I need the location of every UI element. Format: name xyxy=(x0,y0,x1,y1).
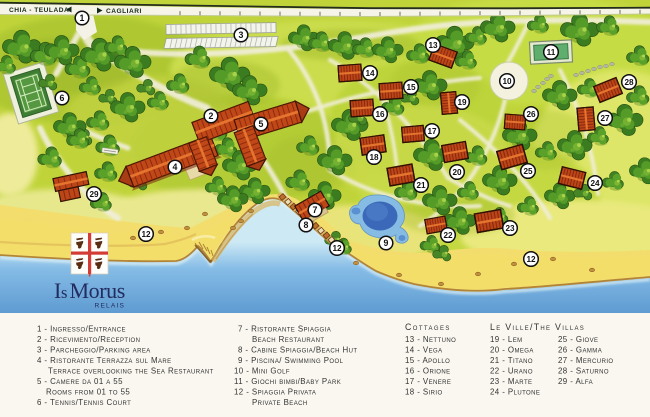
svg-text:3 - Parcheggio/Parking area: 3 - Parcheggio/Parking area xyxy=(37,346,151,355)
svg-text:20: 20 xyxy=(452,168,462,177)
svg-text:11: 11 xyxy=(547,48,556,57)
svg-text:4 - Ristorante Terrazza sul Ma: 4 - Ristorante Terrazza sul Mare xyxy=(37,356,172,365)
svg-text:9 - Piscina/ Swimming Pool: 9 - Piscina/ Swimming Pool xyxy=(238,356,344,365)
svg-text:23 - Marte: 23 - Marte xyxy=(490,377,532,386)
svg-text:15 - Apollo: 15 - Apollo xyxy=(405,356,450,365)
svg-text:9: 9 xyxy=(384,238,389,248)
svg-text:17 - Venere: 17 - Venere xyxy=(405,377,451,386)
svg-text:2: 2 xyxy=(209,111,214,121)
svg-text:Cottages: Cottages xyxy=(405,322,451,332)
svg-text:CHIA - TEULADA: CHIA - TEULADA xyxy=(9,7,69,14)
svg-text:25: 25 xyxy=(523,167,533,176)
svg-text:18 - Sirio: 18 - Sirio xyxy=(405,388,443,397)
svg-text:15: 15 xyxy=(406,83,416,92)
svg-text:28: 28 xyxy=(624,78,634,87)
svg-text:7: 7 xyxy=(313,205,318,215)
svg-text:Private Beach: Private Beach xyxy=(252,398,308,407)
svg-text:25 - Giove: 25 - Giove xyxy=(558,335,598,344)
svg-text:Le Ville/The Villas: Le Ville/The Villas xyxy=(490,322,585,332)
svg-text:24: 24 xyxy=(590,179,600,188)
svg-text:1 - Ingresso/Entrance: 1 - Ingresso/Entrance xyxy=(37,325,126,334)
svg-text:23: 23 xyxy=(505,224,515,233)
svg-text:CAGLIARI: CAGLIARI xyxy=(106,8,142,15)
svg-text:12: 12 xyxy=(141,230,151,239)
svg-text:14: 14 xyxy=(365,69,375,78)
svg-text:12: 12 xyxy=(526,255,536,264)
svg-text:2 - Ricevimento/Reception: 2 - Ricevimento/Reception xyxy=(37,335,140,344)
svg-text:19: 19 xyxy=(457,98,467,107)
svg-text:8: 8 xyxy=(304,220,309,230)
svg-text:26 - Gamma: 26 - Gamma xyxy=(558,346,602,355)
svg-text:3: 3 xyxy=(239,30,244,40)
svg-text:16 - Orione: 16 - Orione xyxy=(405,367,451,376)
svg-text:16: 16 xyxy=(375,110,385,119)
svg-text:13 - Nettuno: 13 - Nettuno xyxy=(405,335,456,344)
svg-text:6 - Tennis/Tennis Court: 6 - Tennis/Tennis Court xyxy=(37,398,131,407)
svg-text:13: 13 xyxy=(428,41,438,50)
svg-text:18: 18 xyxy=(369,153,379,162)
svg-text:5 - Camere da 01 a 55: 5 - Camere da 01 a 55 xyxy=(37,377,123,386)
svg-text:24 - Plutone: 24 - Plutone xyxy=(490,388,540,397)
svg-text:8 - Cabine Spiaggia/Beach Hut: 8 - Cabine Spiaggia/Beach Hut xyxy=(238,346,357,355)
svg-text:17: 17 xyxy=(427,127,437,136)
svg-text:Rooms from 01 to 55: Rooms from 01 to 55 xyxy=(46,388,130,397)
svg-text:21 - Titano: 21 - Titano xyxy=(490,356,533,365)
svg-text:28 - Saturno: 28 - Saturno xyxy=(558,367,609,376)
svg-text:14 - Vega: 14 - Vega xyxy=(405,346,443,355)
svg-text:22: 22 xyxy=(443,231,453,240)
svg-text:7 - Ristorante Spiaggia: 7 - Ristorante Spiaggia xyxy=(238,325,331,334)
svg-text:4: 4 xyxy=(173,162,178,172)
svg-text:20 - Omega: 20 - Omega xyxy=(490,346,534,355)
svg-text:27 - Mercurio: 27 - Mercurio xyxy=(558,356,614,365)
svg-text:Terrace overlooking the Sea Re: Terrace overlooking the Sea Restaurant xyxy=(48,367,214,376)
svg-text:10: 10 xyxy=(502,77,512,86)
svg-text:6: 6 xyxy=(60,93,65,103)
svg-text:12: 12 xyxy=(332,244,342,253)
svg-text:5: 5 xyxy=(259,119,264,129)
svg-text:27: 27 xyxy=(600,114,610,123)
svg-text:29 - Alfa: 29 - Alfa xyxy=(558,377,593,386)
svg-text:11 - Giochi bimbi/Baby Park: 11 - Giochi bimbi/Baby Park xyxy=(234,377,341,386)
svg-text:10 - Mini Golf: 10 - Mini Golf xyxy=(234,367,290,376)
svg-text:RELAIS: RELAIS xyxy=(95,303,126,310)
svg-text:22 - Urano: 22 - Urano xyxy=(490,367,533,376)
svg-text:12 - Spiaggia Privata: 12 - Spiaggia Privata xyxy=(234,388,316,397)
svg-text:26: 26 xyxy=(526,110,536,119)
svg-text:29: 29 xyxy=(89,190,99,199)
svg-text:Beach Restaurant: Beach Restaurant xyxy=(252,335,324,344)
svg-text:1: 1 xyxy=(80,13,85,23)
svg-text:19 - Lem: 19 - Lem xyxy=(490,335,523,344)
svg-text:21: 21 xyxy=(416,181,426,190)
